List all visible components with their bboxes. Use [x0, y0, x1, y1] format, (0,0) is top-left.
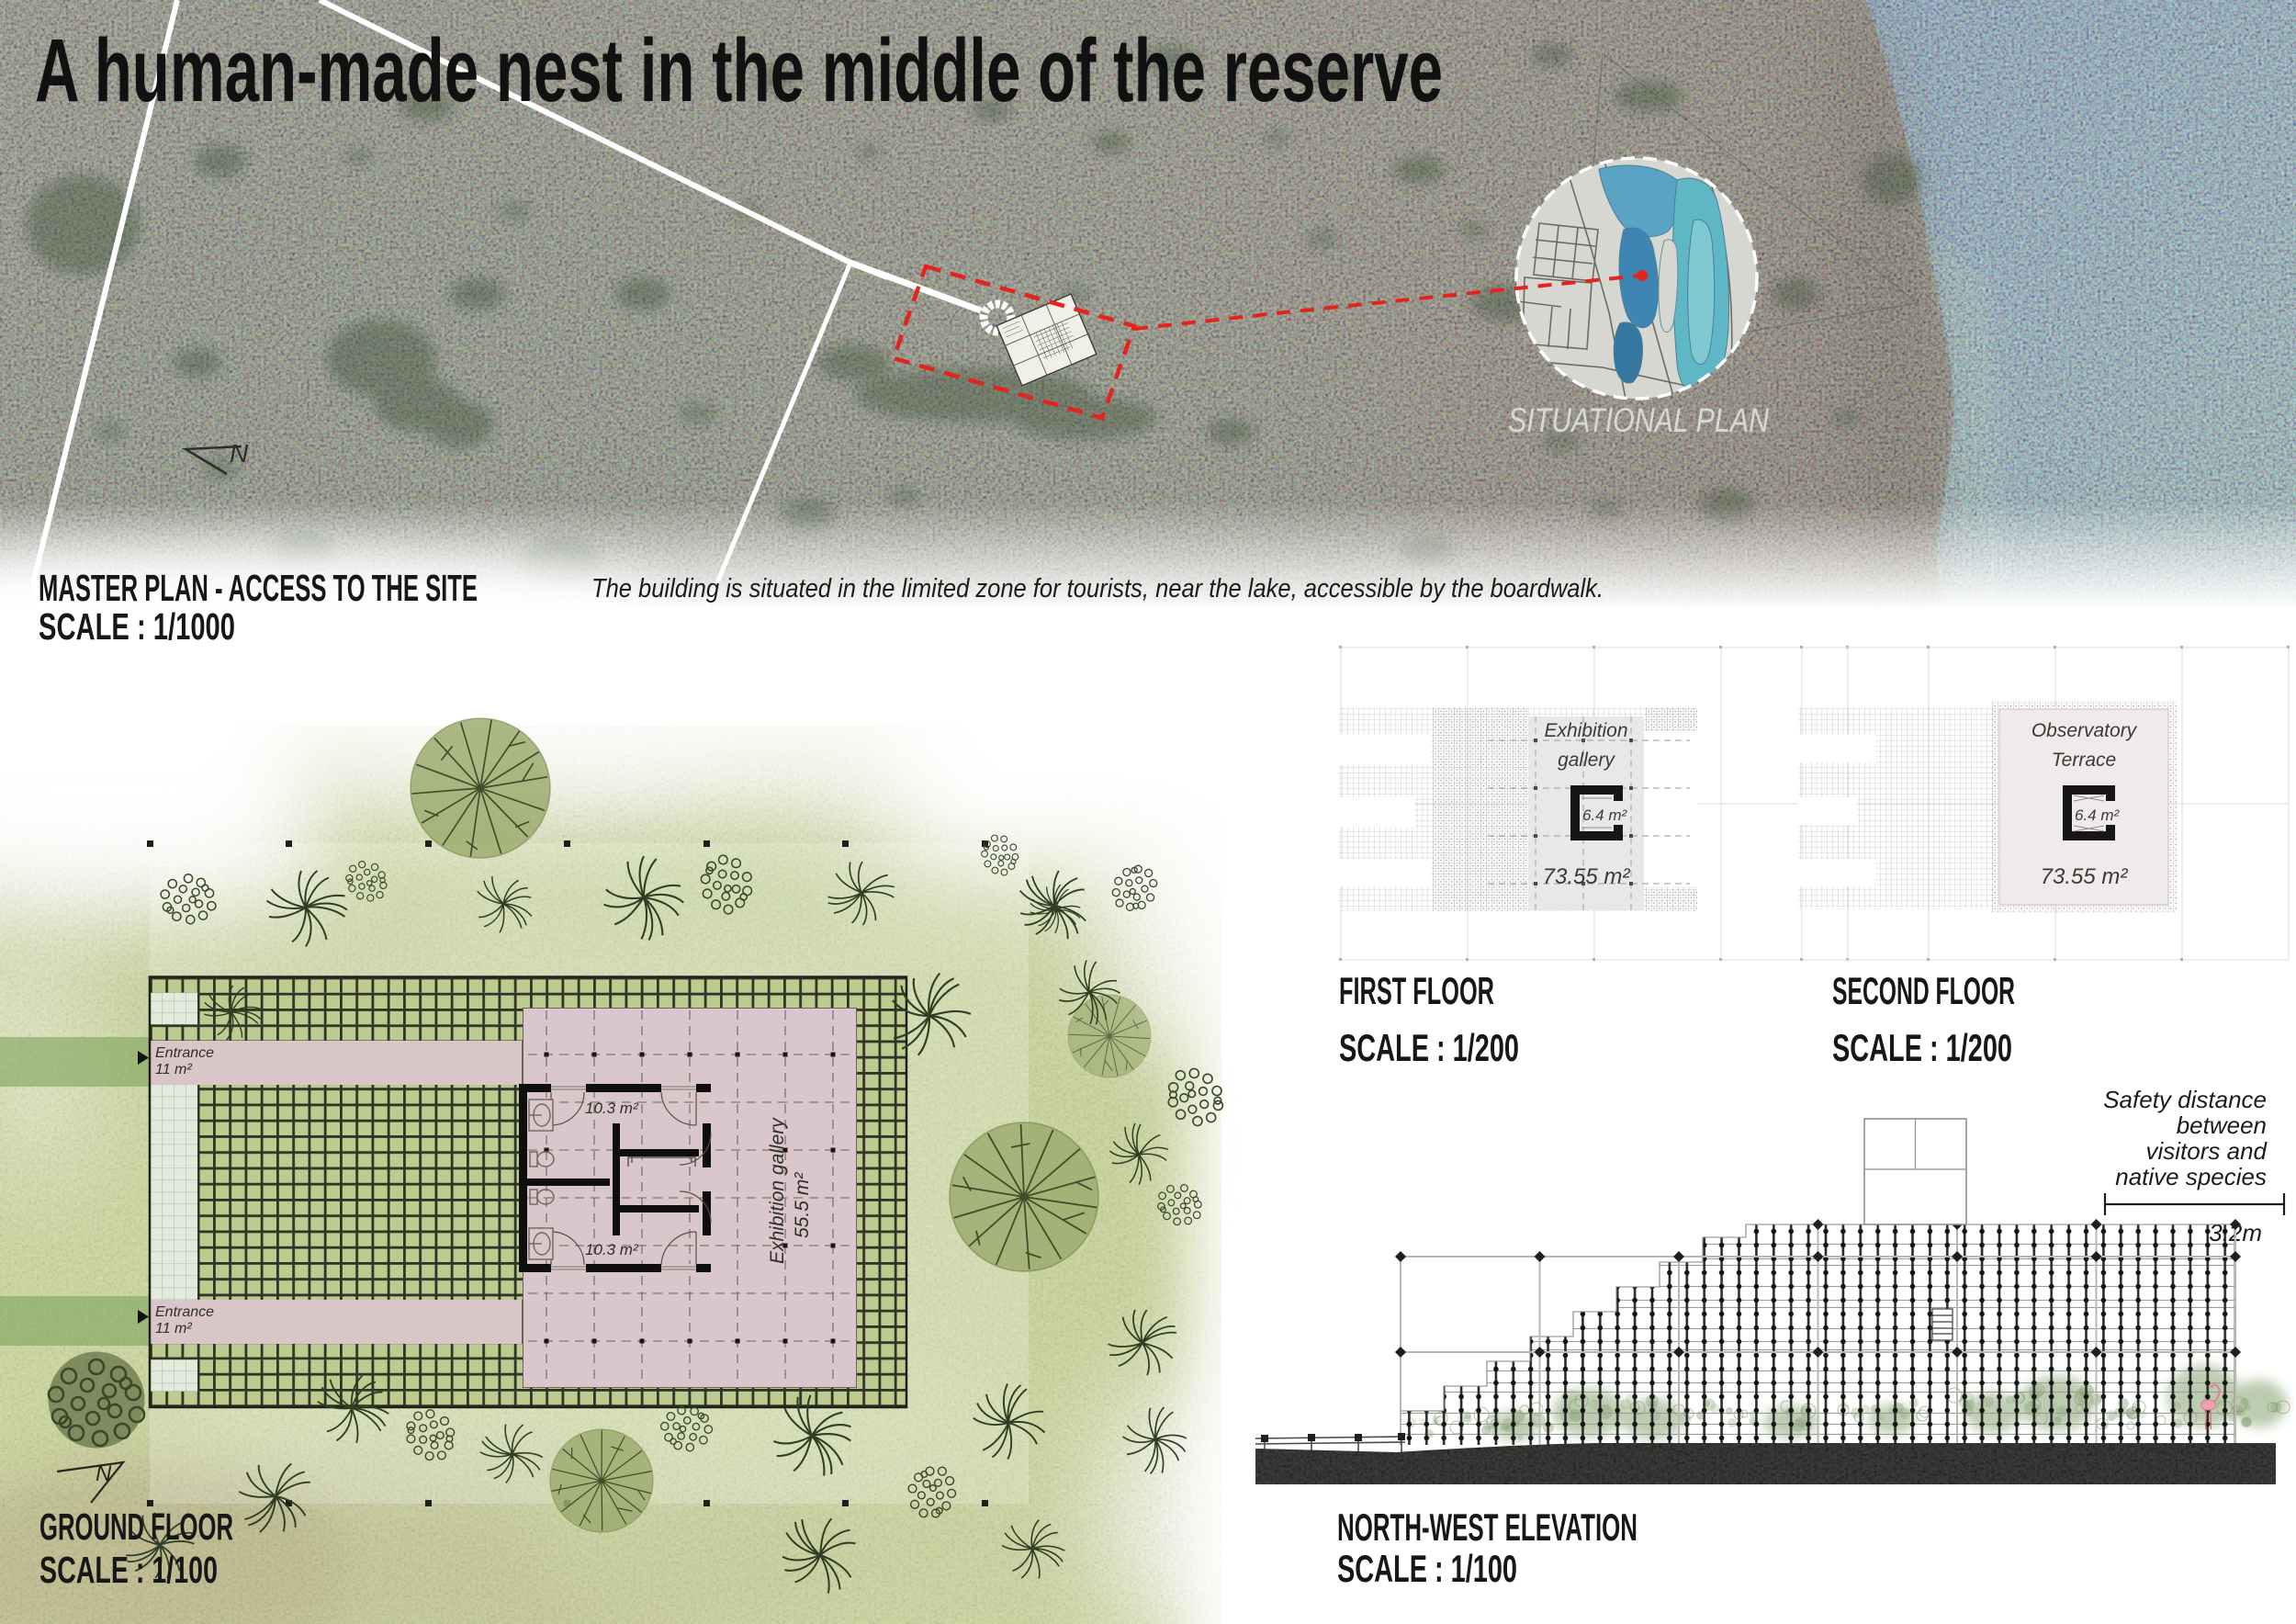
- svg-text:73.55 m²: 73.55 m²: [1543, 864, 1631, 889]
- svg-text:Exhibition gallery: Exhibition gallery: [767, 1117, 788, 1264]
- svg-text:MASTER PLAN - ACCESS TO THE SI: MASTER PLAN - ACCESS TO THE SITE: [39, 567, 478, 609]
- svg-text:SCALE : 1/200: SCALE : 1/200: [1832, 1026, 2012, 1069]
- svg-text:10.3 m²: 10.3 m²: [585, 1241, 639, 1258]
- svg-text:11 m²: 11 m²: [155, 1062, 192, 1077]
- svg-text:55.5 m²: 55.5 m²: [792, 1172, 813, 1238]
- svg-text:between: between: [2177, 1111, 2267, 1139]
- svg-text:Observatory: Observatory: [2032, 720, 2138, 741]
- svg-text:gallery: gallery: [1558, 750, 1615, 771]
- svg-text:GROUND FLOOR: GROUND FLOOR: [39, 1506, 233, 1548]
- svg-text:SCALE : 1/100: SCALE : 1/100: [39, 1549, 218, 1591]
- svg-text:The building is situated in th: The building is situated in the limited …: [591, 574, 1604, 603]
- svg-text:6.4 m²: 6.4 m²: [1582, 806, 1628, 824]
- svg-text:SCALE : 1/100: SCALE : 1/100: [1337, 1547, 1517, 1590]
- svg-text:Terrace: Terrace: [2052, 750, 2116, 771]
- svg-text:11 m²: 11 m²: [155, 1321, 192, 1336]
- svg-text:10.3 m²: 10.3 m²: [585, 1100, 639, 1117]
- svg-text:N: N: [96, 1461, 112, 1486]
- svg-text:SECOND FLOOR: SECOND FLOOR: [1832, 969, 2015, 1012]
- svg-text:SCALE : 1/1000: SCALE : 1/1000: [39, 605, 235, 648]
- svg-text:73.55 m²: 73.55 m²: [2041, 864, 2129, 889]
- svg-text:Exhibition: Exhibition: [1544, 720, 1627, 741]
- svg-text:SCALE : 1/200: SCALE : 1/200: [1339, 1026, 1519, 1069]
- svg-text:NORTH-WEST ELEVATION: NORTH-WEST ELEVATION: [1337, 1506, 1638, 1549]
- svg-text:N: N: [230, 439, 249, 468]
- svg-text:A human-made nest in the middl: A human-made nest in the middle of the r…: [35, 20, 1443, 120]
- svg-text:6.4 m²: 6.4 m²: [2075, 806, 2121, 824]
- svg-text:visitors and: visitors and: [2146, 1137, 2268, 1165]
- svg-text:Entrance: Entrance: [155, 1304, 214, 1320]
- svg-text:Entrance: Entrance: [155, 1045, 214, 1061]
- svg-text:FIRST FLOOR: FIRST FLOOR: [1339, 969, 1494, 1012]
- svg-text:Safety distance: Safety distance: [2103, 1086, 2267, 1113]
- svg-text:native species: native species: [2115, 1163, 2267, 1190]
- svg-text:SITUATIONAL PLAN: SITUATIONAL PLAN: [1508, 401, 1769, 439]
